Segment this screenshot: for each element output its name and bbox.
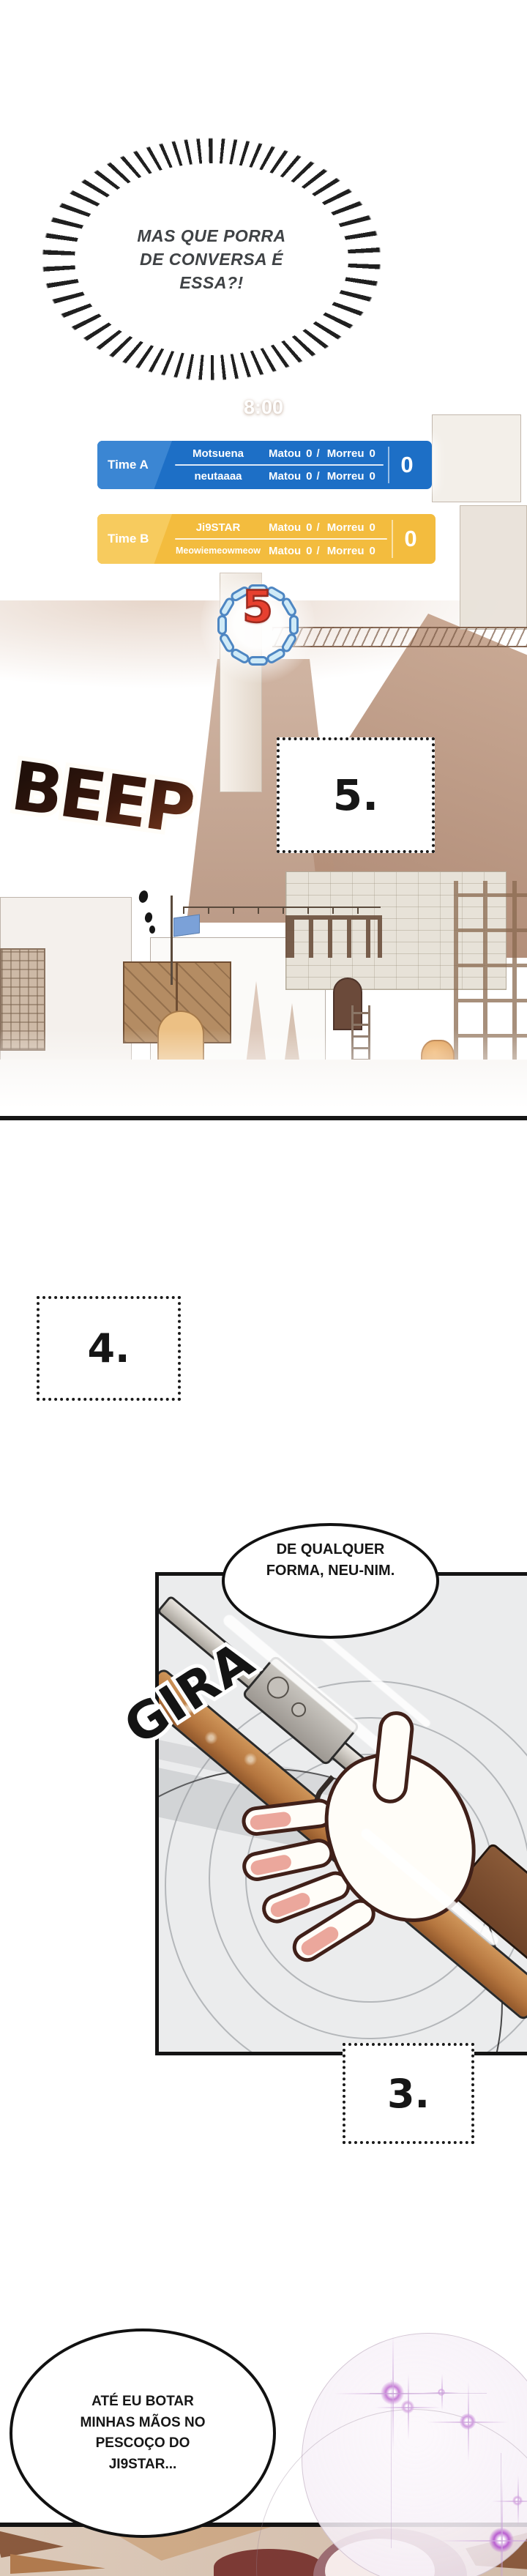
deaths-label: Morreu — [327, 447, 365, 460]
team-a-score: 0 — [391, 452, 423, 478]
panel-city-scene: MAS QUE PORRA DE CONVERSA É ESSA?! 8:00 … — [0, 0, 527, 1122]
row-separator — [175, 464, 384, 466]
sfx-beep-fill: BEEP — [7, 747, 197, 849]
kills-label: Matou — [269, 470, 301, 483]
hair-spike — [10, 2552, 105, 2574]
sparkle-hairline — [370, 2393, 487, 2394]
scoreboard-team-b: Time B Ji9STAR Matou 0 / Morreu 0 Meowie… — [97, 514, 436, 564]
player-row: Motsuena Matou 0 / Morreu 0 — [175, 447, 384, 460]
team-a-label-zone: Time A — [97, 441, 172, 489]
sparkle-icon — [460, 2413, 476, 2430]
hair-spike — [0, 2530, 64, 2558]
deaths-value: 0 — [370, 521, 375, 534]
team-b-label-zone: Time B — [97, 514, 172, 564]
panel-number-box-5: 5. — [277, 737, 435, 853]
team-b-rows: Ji9STAR Matou 0 / Morreu 0 Meowiemeowmeo… — [175, 516, 387, 562]
player-name: Motsuena — [175, 447, 261, 460]
deaths-value: 0 — [370, 447, 375, 460]
kills-value: 0 — [306, 470, 312, 483]
deaths-label: Morreu — [327, 470, 365, 483]
countdown-number: 5 — [212, 581, 303, 633]
rope-fence — [183, 907, 381, 914]
team-a-rows: Motsuena Matou 0 / Morreu 0 neutaaaa Mat… — [175, 443, 384, 487]
match-timer: 8:00 — [0, 396, 527, 419]
panel-number: 3. — [387, 2071, 430, 2117]
kills-label: Matou — [269, 447, 301, 460]
speech-text: DE QUALQUER FORMA, NEU-NIM. — [266, 1526, 395, 1582]
player-name: neutaaaa — [175, 470, 261, 483]
score-divider — [388, 447, 389, 483]
sfx-dot — [149, 926, 155, 934]
team-b-score: 0 — [395, 526, 427, 552]
sparkle-hairline — [391, 2380, 392, 2548]
panel-bottom-border — [0, 1116, 527, 1120]
sparkle-hairline — [501, 2453, 501, 2576]
row-separator — [175, 538, 387, 540]
player-row: Meowiemeowmeow Matou 0 / Morreu 0 — [175, 545, 387, 557]
stat-separator: / — [317, 470, 320, 483]
kills-label: Matou — [269, 545, 301, 557]
deaths-value: 0 — [370, 470, 375, 483]
blue-flag — [173, 914, 200, 937]
flag-pole — [171, 896, 173, 985]
panel-number: 4. — [87, 1325, 130, 1371]
sparkle-icon — [512, 2495, 523, 2506]
speech-text-scream: MAS QUE PORRA DE CONVERSA É ESSA?! — [75, 180, 348, 338]
panel-number: 5. — [333, 770, 378, 820]
player-name: Ji9STAR — [175, 521, 261, 534]
player-row: neutaaaa Matou 0 / Morreu 0 — [175, 470, 384, 483]
sparkle-icon — [401, 2400, 414, 2413]
player-row: Ji9STAR Matou 0 / Morreu 0 — [175, 521, 387, 534]
deaths-label: Morreu — [327, 545, 365, 557]
town-buildings — [0, 853, 527, 1122]
stat-separator: / — [317, 521, 320, 534]
score-divider — [392, 520, 393, 558]
sparkle-icon — [438, 2389, 445, 2396]
team-b-label: Time B — [108, 532, 149, 546]
panel-number-box-3: 3. — [343, 2043, 474, 2144]
player-name: Meowiemeowmeow — [175, 546, 261, 556]
stat-separator: / — [317, 447, 320, 460]
deaths-label: Morreu — [327, 521, 365, 534]
countdown-marker: 5 — [212, 577, 303, 672]
kills-value: 0 — [306, 545, 312, 557]
comic-page: MAS QUE PORRA DE CONVERSA É ESSA?! 8:00 … — [0, 0, 527, 2576]
kills-value: 0 — [306, 521, 312, 534]
building-far-right-lower — [460, 505, 527, 630]
sparkle-icon — [489, 2528, 514, 2553]
scoreboard-team-a: Time A Motsuena Matou 0 / Morreu 0 neuta… — [97, 441, 432, 489]
stat-separator: / — [317, 545, 320, 557]
fade-to-white — [0, 1029, 527, 1122]
finger — [240, 1797, 335, 1837]
pergola-frame — [285, 915, 382, 958]
building-far-right — [432, 414, 521, 502]
speech-bubble-ate: ATÉ EU BOTAR MINHAS MÃOS NO PESCOÇO DO J… — [10, 2329, 276, 2538]
burst-speech-bubble: MAS QUE PORRA DE CONVERSA É ESSA?! — [37, 134, 386, 384]
deaths-value: 0 — [370, 545, 375, 557]
kills-label: Matou — [269, 521, 301, 534]
team-a-label: Time A — [108, 458, 149, 472]
faint-circle-outline — [256, 2409, 527, 2576]
speech-text: ATÉ EU BOTAR MINHAS MÃOS NO PESCOÇO DO J… — [81, 2391, 206, 2475]
kills-value: 0 — [306, 447, 312, 460]
panel-number-box-4: 4. — [37, 1296, 181, 1401]
